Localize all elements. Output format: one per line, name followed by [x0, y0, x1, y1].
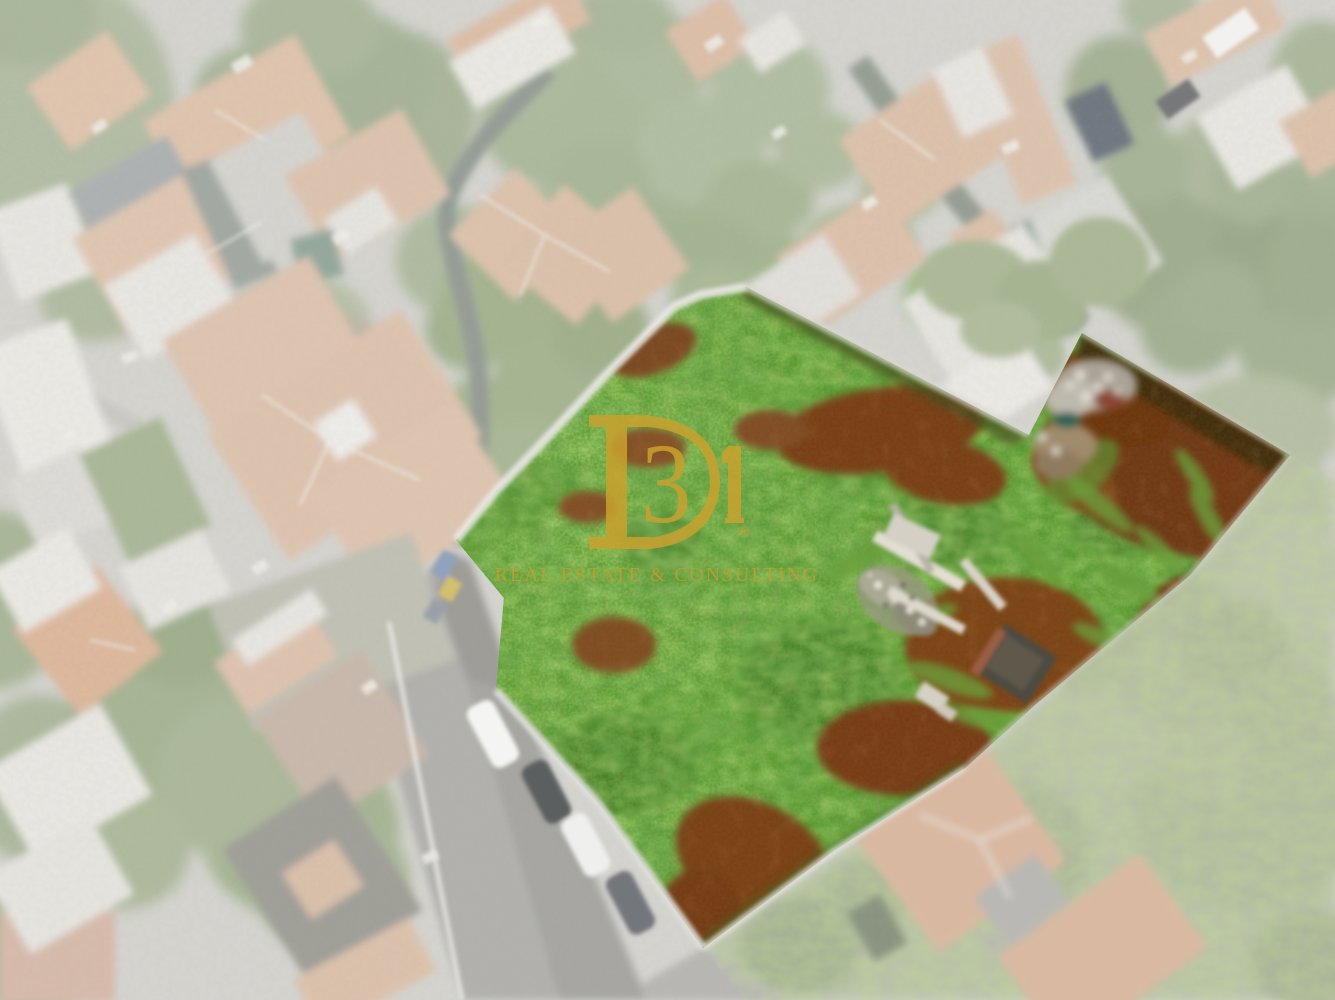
- svg-text:®: ®: [737, 524, 749, 541]
- svg-text:REAL ESTATE & CONSULTING: REAL ESTATE & CONSULTING: [495, 565, 819, 586]
- svg-text:3: 3: [641, 420, 692, 547]
